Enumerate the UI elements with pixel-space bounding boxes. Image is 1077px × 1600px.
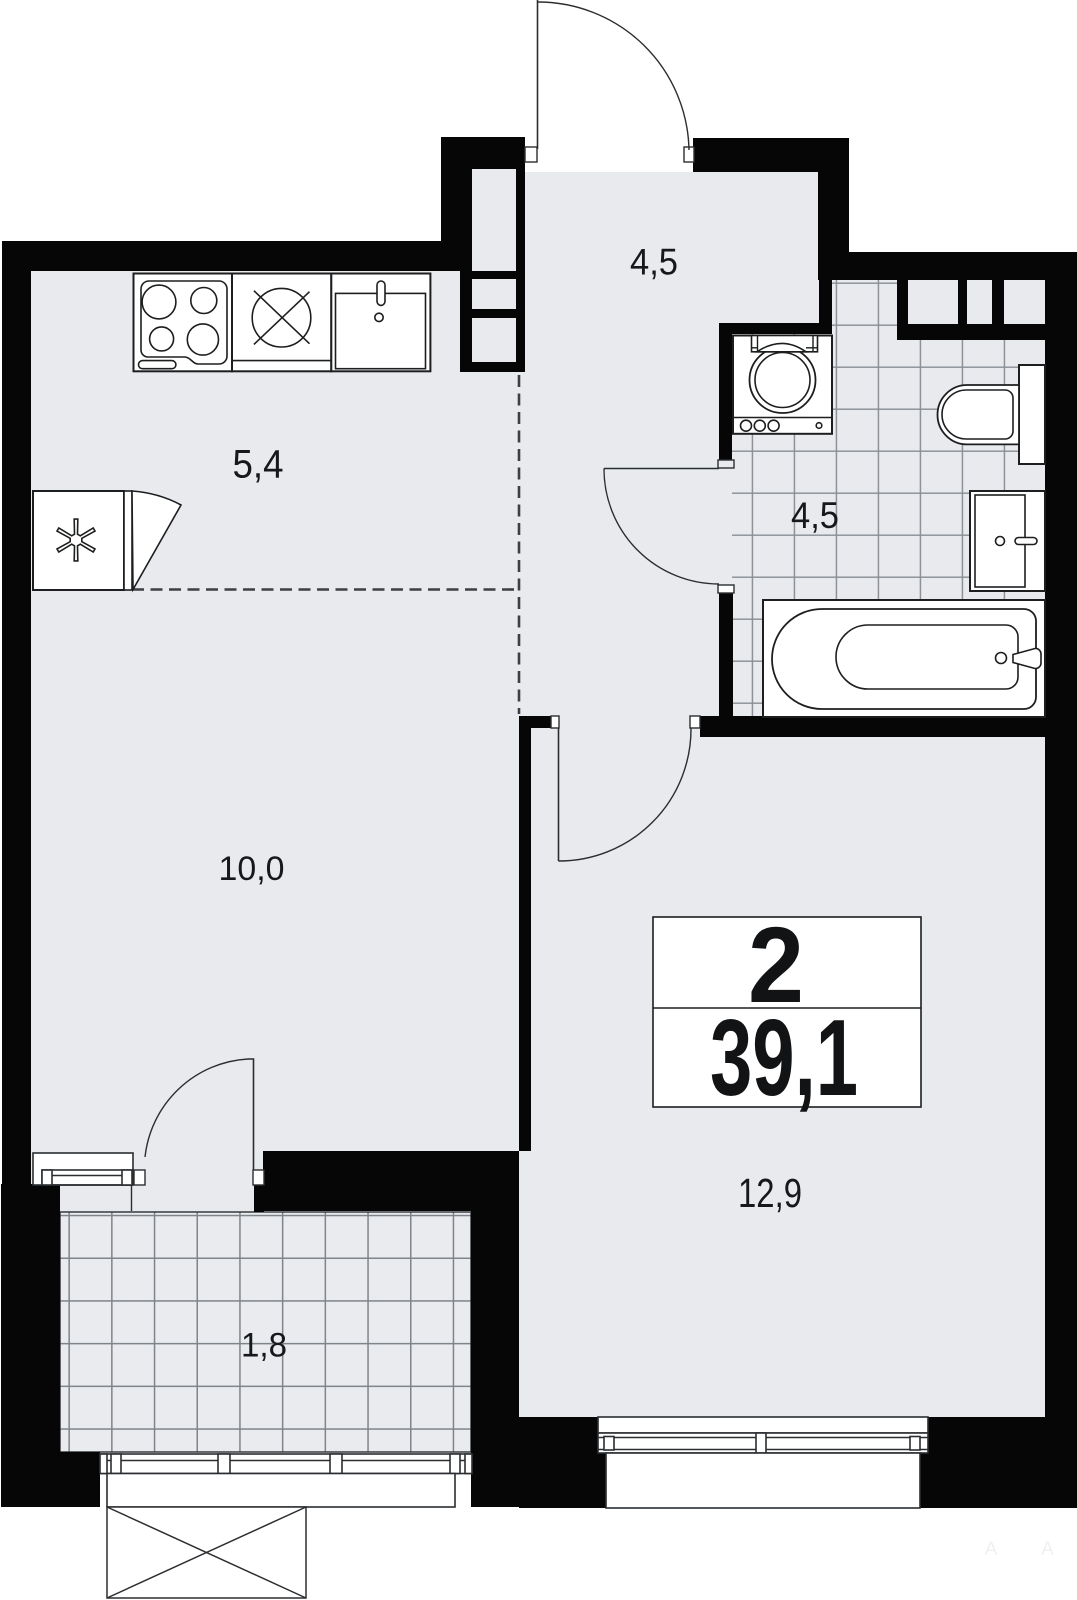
svg-text:1,8: 1,8 xyxy=(241,1327,287,1365)
svg-text:39,1: 39,1 xyxy=(710,997,858,1119)
svg-text:A: A xyxy=(985,1539,998,1560)
svg-text:5,4: 5,4 xyxy=(233,443,284,487)
svg-text:12,9: 12,9 xyxy=(738,1170,802,1216)
svg-text:4,5: 4,5 xyxy=(791,495,839,536)
svg-text:A: A xyxy=(1041,1539,1054,1560)
svg-text:10,0: 10,0 xyxy=(219,850,285,888)
svg-text:4,5: 4,5 xyxy=(630,242,678,283)
